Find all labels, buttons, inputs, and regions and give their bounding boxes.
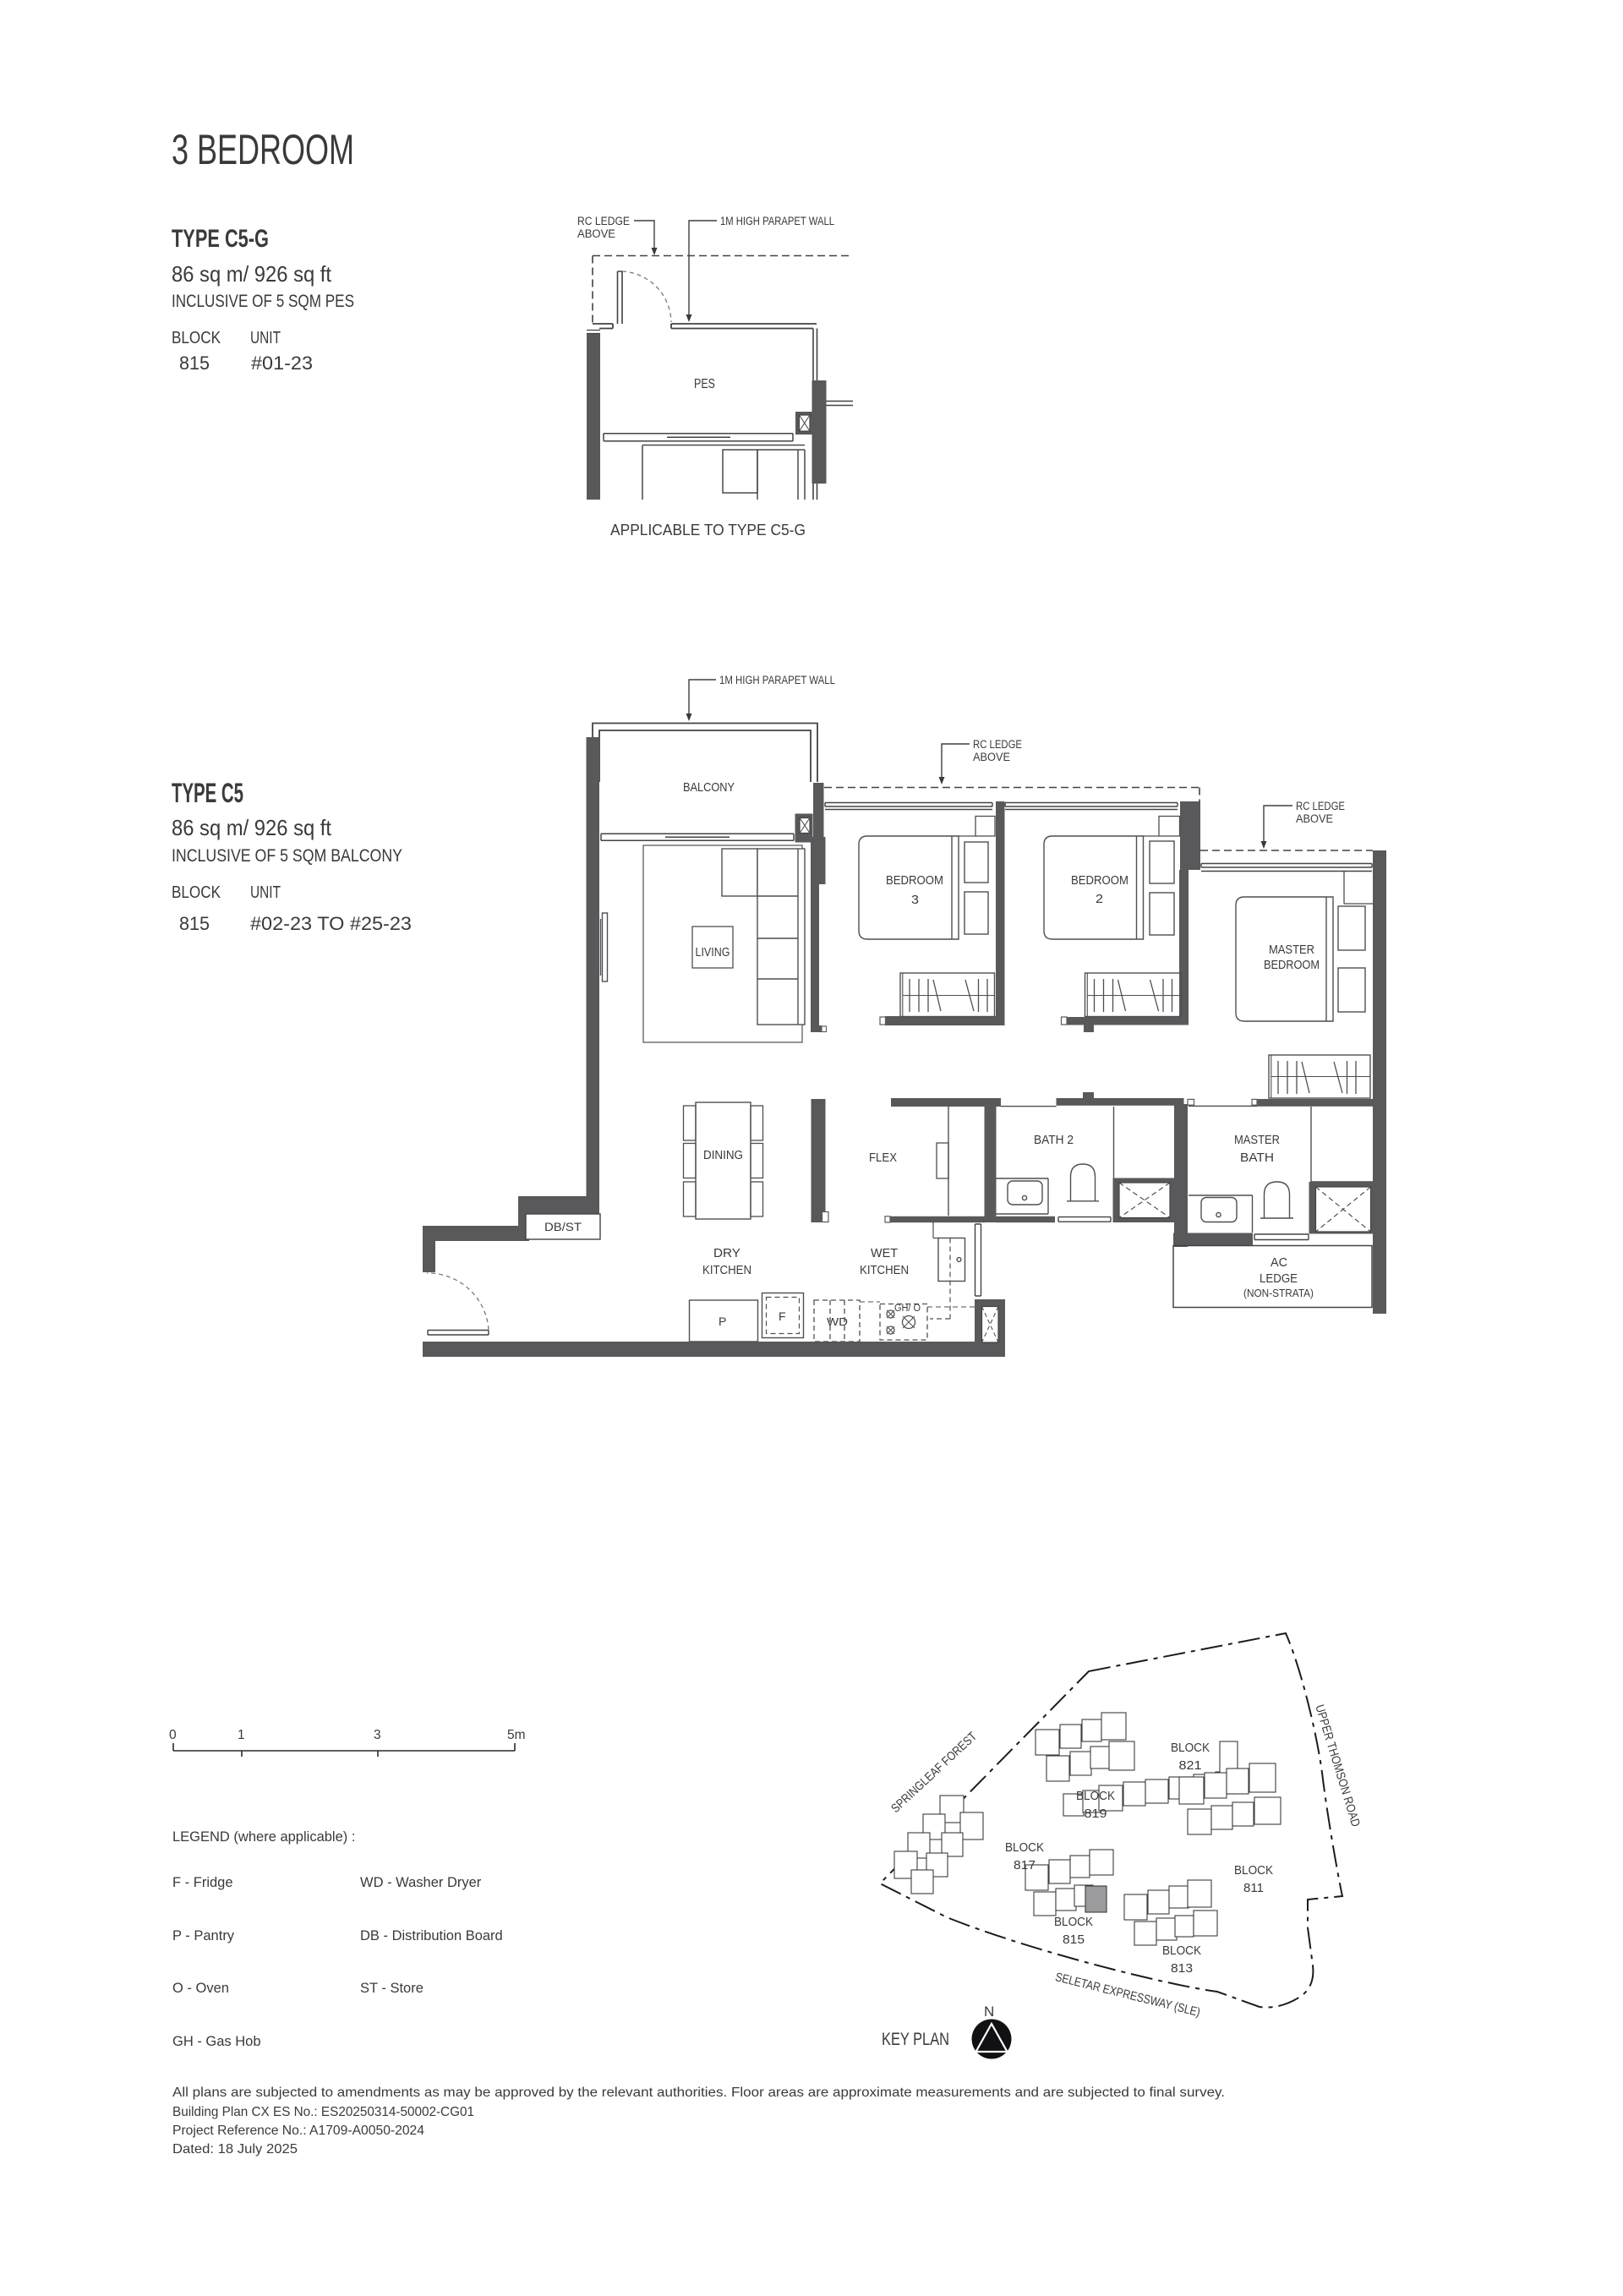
- svg-text:KEY PLAN: KEY PLAN: [882, 2030, 949, 2049]
- svg-text:BALCONY: BALCONY: [683, 780, 735, 795]
- svg-text:GH/ O: GH/ O: [894, 1304, 921, 1314]
- svg-text:3 BEDROOM: 3 BEDROOM: [172, 126, 354, 173]
- svg-text:GH - Gas Hob: GH - Gas Hob: [172, 2034, 261, 2049]
- svg-text:#01-23: #01-23: [251, 353, 313, 374]
- svg-text:DB/ST: DB/ST: [544, 1221, 582, 1233]
- svg-text:F - Fridge: F - Fridge: [172, 1875, 233, 1890]
- svg-text:FLEX: FLEX: [869, 1151, 897, 1165]
- svg-text:LIVING: LIVING: [696, 945, 730, 959]
- svg-text:DRY: DRY: [713, 1246, 740, 1260]
- svg-text:5m: 5m: [507, 1728, 526, 1742]
- svg-text:1: 1: [238, 1728, 245, 1742]
- svg-text:BLOCK: BLOCK: [172, 329, 221, 347]
- svg-text:BEDROOM: BEDROOM: [886, 873, 943, 888]
- svg-text:ST - Store: ST - Store: [360, 1981, 424, 1996]
- svg-text:F: F: [779, 1309, 786, 1323]
- svg-text:86 sq m/ 926 sq ft: 86 sq m/ 926 sq ft: [172, 815, 332, 840]
- svg-text:WET: WET: [871, 1246, 898, 1260]
- svg-text:ABOVE: ABOVE: [973, 751, 1010, 763]
- svg-text:815: 815: [179, 913, 210, 934]
- svg-text:TYPE C5-G: TYPE C5-G: [172, 225, 269, 253]
- svg-text:DINING: DINING: [703, 1148, 743, 1162]
- svg-text:ABOVE: ABOVE: [577, 227, 615, 240]
- svg-text:811: 811: [1243, 1881, 1264, 1895]
- svg-text:3: 3: [911, 893, 919, 907]
- svg-text:All plans are subjected to ame: All plans are subjected to amendments as…: [172, 2086, 1225, 2100]
- svg-text:817: 817: [1014, 1858, 1036, 1872]
- svg-text:WD - Washer Dryer: WD - Washer Dryer: [360, 1875, 482, 1890]
- svg-text:BLOCK: BLOCK: [1054, 1915, 1093, 1929]
- svg-text:MASTER: MASTER: [1234, 1133, 1280, 1147]
- svg-text:BLOCK: BLOCK: [1171, 1741, 1210, 1755]
- svg-text:O - Oven: O - Oven: [172, 1981, 229, 1996]
- svg-text:DB - Distribution Board: DB - Distribution Board: [360, 1928, 503, 1943]
- svg-text:BEDROOM: BEDROOM: [1264, 958, 1320, 972]
- svg-text:1M HIGH PARAPET WALL: 1M HIGH PARAPET WALL: [720, 215, 834, 227]
- svg-text:819: 819: [1085, 1807, 1107, 1821]
- svg-text:P - Pantry: P - Pantry: [172, 1928, 235, 1943]
- svg-text:86 sq m/ 926 sq ft: 86 sq m/ 926 sq ft: [172, 261, 332, 287]
- svg-text:LEDGE: LEDGE: [1260, 1271, 1298, 1286]
- svg-text:(NON-STRATA): (NON-STRATA): [1243, 1287, 1314, 1299]
- svg-text:2: 2: [1096, 892, 1103, 906]
- svg-text:BLOCK: BLOCK: [1005, 1840, 1044, 1855]
- svg-text:TYPE C5: TYPE C5: [172, 778, 243, 808]
- svg-text:BLOCK: BLOCK: [1234, 1863, 1273, 1878]
- svg-text:ABOVE: ABOVE: [1296, 812, 1333, 825]
- svg-text:AC: AC: [1271, 1255, 1287, 1270]
- svg-text:3: 3: [374, 1728, 381, 1742]
- svg-text:WD: WD: [827, 1316, 848, 1328]
- svg-text:Project Reference No.: A1709-A: Project Reference No.: A1709-A0050-2024: [172, 2124, 424, 2138]
- svg-text:821: 821: [1179, 1758, 1202, 1773]
- svg-text:KITCHEN: KITCHEN: [860, 1263, 909, 1277]
- svg-text:0: 0: [169, 1728, 177, 1742]
- svg-text:BEDROOM: BEDROOM: [1071, 873, 1128, 888]
- svg-text:INCLUSIVE OF 5 SQM PES: INCLUSIVE OF 5 SQM PES: [172, 292, 354, 311]
- svg-text:BLOCK: BLOCK: [1162, 1943, 1201, 1958]
- svg-text:LEGEND (where applicable) :: LEGEND (where applicable) :: [172, 1829, 355, 1845]
- svg-text:PES: PES: [694, 377, 715, 391]
- svg-text:RC LEDGE: RC LEDGE: [973, 738, 1022, 751]
- svg-text:RC LEDGE: RC LEDGE: [1296, 800, 1345, 812]
- svg-text:1M HIGH PARAPET WALL: 1M HIGH PARAPET WALL: [719, 674, 835, 686]
- svg-text:INCLUSIVE OF 5 SQM BALCONY: INCLUSIVE OF 5 SQM BALCONY: [172, 846, 402, 866]
- svg-text:BLOCK: BLOCK: [1076, 1789, 1115, 1803]
- svg-text:Building Plan CX ES No.: ES202: Building Plan CX ES No.: ES20250314-5000…: [172, 2105, 474, 2119]
- svg-text:N: N: [984, 2004, 994, 2020]
- svg-text:BLOCK: BLOCK: [172, 883, 221, 902]
- svg-text:813: 813: [1171, 1961, 1193, 1976]
- svg-text:815: 815: [1063, 1932, 1085, 1947]
- svg-text:Dated: 18 July 2025: Dated: 18 July 2025: [172, 2142, 298, 2157]
- svg-text:MASTER: MASTER: [1269, 943, 1314, 957]
- svg-text:#02-23 TO #25-23: #02-23 TO #25-23: [250, 913, 412, 934]
- svg-text:P: P: [719, 1315, 726, 1328]
- svg-text:BATH: BATH: [1240, 1151, 1274, 1165]
- svg-text:UNIT: UNIT: [250, 329, 281, 347]
- svg-text:RC LEDGE: RC LEDGE: [577, 215, 630, 227]
- svg-text:KITCHEN: KITCHEN: [702, 1263, 751, 1277]
- svg-text:815: 815: [179, 353, 210, 374]
- svg-text:BATH 2: BATH 2: [1034, 1133, 1074, 1147]
- svg-text:UNIT: UNIT: [250, 883, 281, 902]
- svg-text:APPLICABLE TO TYPE C5-G: APPLICABLE TO TYPE C5-G: [610, 521, 806, 538]
